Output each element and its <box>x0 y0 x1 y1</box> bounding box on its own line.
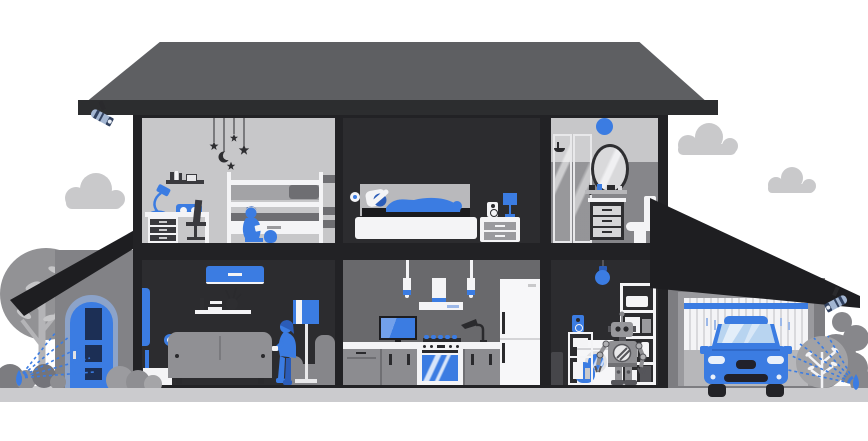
toiletry-bottle <box>607 185 615 190</box>
lawn-sprinkler-right <box>786 334 868 394</box>
small-cabinet <box>568 332 593 385</box>
storage-box <box>573 362 583 379</box>
toy <box>264 230 277 243</box>
ac-vent <box>206 282 264 285</box>
door-handle <box>389 354 392 365</box>
desk-drawers <box>148 217 178 243</box>
fridge-handle <box>502 312 505 334</box>
top-pillow <box>289 185 319 199</box>
desk-lamp <box>148 182 172 216</box>
sofa-cushion-gap <box>219 336 221 360</box>
speaker-dot <box>491 204 495 208</box>
bedside-lamp-shade <box>503 193 517 205</box>
tv <box>379 316 417 340</box>
ladder-shelf-slat <box>323 207 335 215</box>
speaker <box>487 202 498 217</box>
trash-bin <box>551 352 563 385</box>
bottle <box>585 368 590 379</box>
lamp-shade-stripe <box>296 300 302 324</box>
faucet <box>459 316 491 344</box>
door-handle <box>407 354 410 365</box>
floor-lamp-base <box>295 379 317 383</box>
air-conditioner <box>206 266 264 284</box>
range-hood-dash <box>447 305 459 308</box>
smart-home-illustration <box>0 0 868 441</box>
vanity-cabinet <box>590 202 624 240</box>
security-camera-right <box>818 286 852 316</box>
cloud-right-lower <box>760 166 822 194</box>
wall-shelf <box>195 310 251 314</box>
smart-bulb <box>595 270 610 285</box>
oven-door <box>422 355 458 381</box>
door-handle <box>471 354 474 365</box>
woman-with-phone <box>270 318 306 385</box>
office-chair-back <box>193 200 202 225</box>
star-moon-mobile <box>204 118 256 176</box>
cabinet-divider <box>463 349 465 385</box>
cloud-left <box>56 172 132 210</box>
drawer-handle <box>602 209 612 211</box>
bed-with-sleeping-person <box>355 184 481 243</box>
toilet-seat <box>626 222 650 231</box>
sofa-leg <box>258 378 264 384</box>
ladder-shelf-slat <box>323 220 335 228</box>
book-flat <box>210 301 222 304</box>
pendant-lamp <box>467 260 477 298</box>
lamp-bulb <box>469 295 473 298</box>
oven-handle <box>422 350 458 353</box>
sofa-button <box>261 354 265 358</box>
sofa-button <box>175 354 179 358</box>
kids-room <box>142 118 335 243</box>
photo-frame <box>186 174 197 182</box>
candle <box>200 298 204 310</box>
speaker-ring <box>575 324 583 332</box>
cloud-right-upper <box>668 122 746 156</box>
smart-light-dot <box>596 118 613 135</box>
bedside-lamp-base <box>505 214 515 217</box>
toiletry-shelf <box>585 190 627 194</box>
cabinet-divider <box>380 349 382 385</box>
book-flat <box>209 304 221 307</box>
control-knob <box>449 345 452 348</box>
ac-display-dash <box>228 273 242 276</box>
toiletry-bottle <box>597 184 602 190</box>
burner-cap <box>438 335 443 339</box>
toiletry-bottle <box>589 185 595 190</box>
door-handle <box>489 354 492 365</box>
book <box>175 171 178 180</box>
control-knob <box>430 345 433 348</box>
speaker-ring <box>490 209 498 217</box>
bathroom <box>551 118 658 243</box>
drawer-handle <box>159 221 167 223</box>
control-display <box>437 345 445 348</box>
drawer-handle <box>495 235 505 237</box>
control-knob <box>456 345 459 348</box>
desk-leg <box>205 217 209 243</box>
toiletry-bottle <box>618 186 622 190</box>
sofa-leg <box>176 378 182 384</box>
toilet-base <box>634 231 646 243</box>
fridge-divider <box>500 338 540 340</box>
vacuum-dock <box>142 288 150 346</box>
vase-with-twigs <box>222 288 248 310</box>
lawn-sprinkler-left <box>6 328 98 390</box>
utility-room <box>551 260 658 385</box>
drawer-line <box>347 357 376 359</box>
drawer-handle <box>495 225 505 227</box>
oven-glare <box>422 355 458 381</box>
speaker-dot <box>576 318 580 322</box>
fridge-vent <box>528 284 536 287</box>
speaker <box>572 315 584 332</box>
nightstand <box>480 217 520 242</box>
lamp-cord <box>470 260 473 278</box>
tv-glare <box>381 318 415 338</box>
robot-assistant <box>591 310 649 385</box>
drawer-handle <box>602 231 612 233</box>
lamp-cord <box>406 260 409 278</box>
drawer-handle <box>602 220 612 222</box>
fridge <box>500 279 540 385</box>
oven-stove <box>417 342 463 385</box>
sofa <box>168 332 272 384</box>
towel-stack <box>573 338 588 347</box>
fridge-handle <box>502 343 505 363</box>
cabinet-shelf <box>570 356 591 358</box>
burner-cap <box>424 335 429 339</box>
pendant-lamp <box>403 260 413 298</box>
drawer-handle <box>159 229 167 231</box>
drawer-handle <box>159 237 167 239</box>
control-knob <box>423 345 426 348</box>
office-chair-base <box>187 237 205 240</box>
lamp-shade <box>467 278 475 290</box>
lamp-shade <box>403 278 411 290</box>
shower-cabin <box>553 134 593 243</box>
office-chair-pole <box>194 226 197 237</box>
ladder-shelf-slat <box>323 175 335 183</box>
range-hood-duct <box>432 278 446 300</box>
security-camera-left <box>86 100 120 130</box>
bedroom <box>343 118 540 243</box>
burner-cap <box>431 335 436 339</box>
book <box>179 173 182 180</box>
book-flat <box>208 307 222 310</box>
book <box>170 172 174 180</box>
burner-cap <box>445 335 450 339</box>
floor-lamp-shade <box>293 300 319 324</box>
sofa-seat <box>174 358 266 378</box>
living-room <box>142 260 335 385</box>
roof-fascia <box>78 100 718 115</box>
garage-door-stripe <box>684 303 808 309</box>
kitchen <box>343 260 540 385</box>
main-roof <box>85 42 708 103</box>
towel-stack <box>626 296 648 307</box>
drawer-handle <box>356 352 366 354</box>
burner-cap <box>452 335 457 339</box>
car <box>700 316 792 400</box>
floor-lamp-pole <box>305 324 308 381</box>
lamp-bulb <box>405 295 409 298</box>
